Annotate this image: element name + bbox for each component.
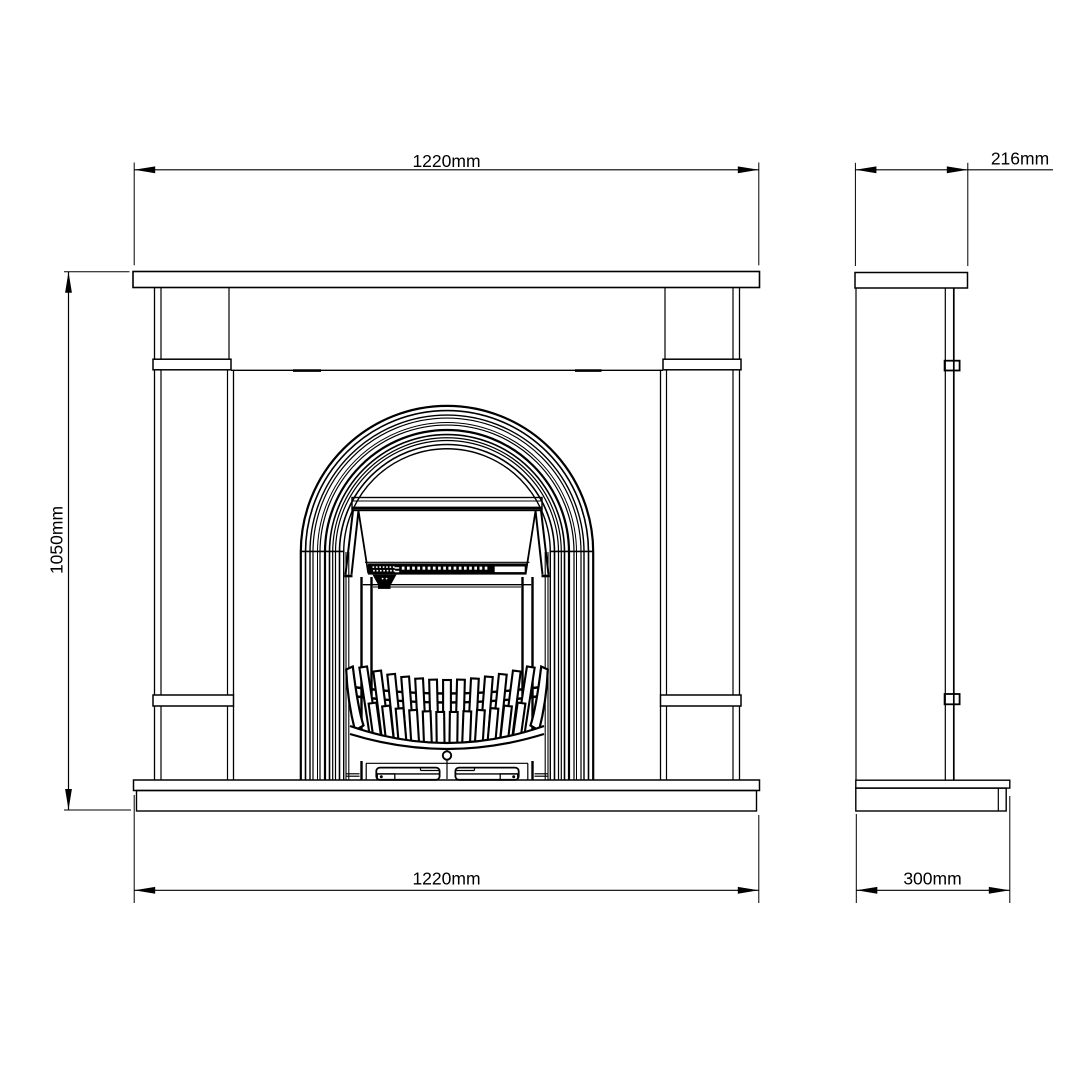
- svg-text:1220mm: 1220mm: [412, 151, 480, 171]
- svg-text:1050mm: 1050mm: [47, 506, 67, 574]
- svg-text:1220mm: 1220mm: [412, 869, 480, 889]
- svg-text:300mm: 300mm: [903, 869, 961, 889]
- svg-text:216mm: 216mm: [991, 149, 1049, 169]
